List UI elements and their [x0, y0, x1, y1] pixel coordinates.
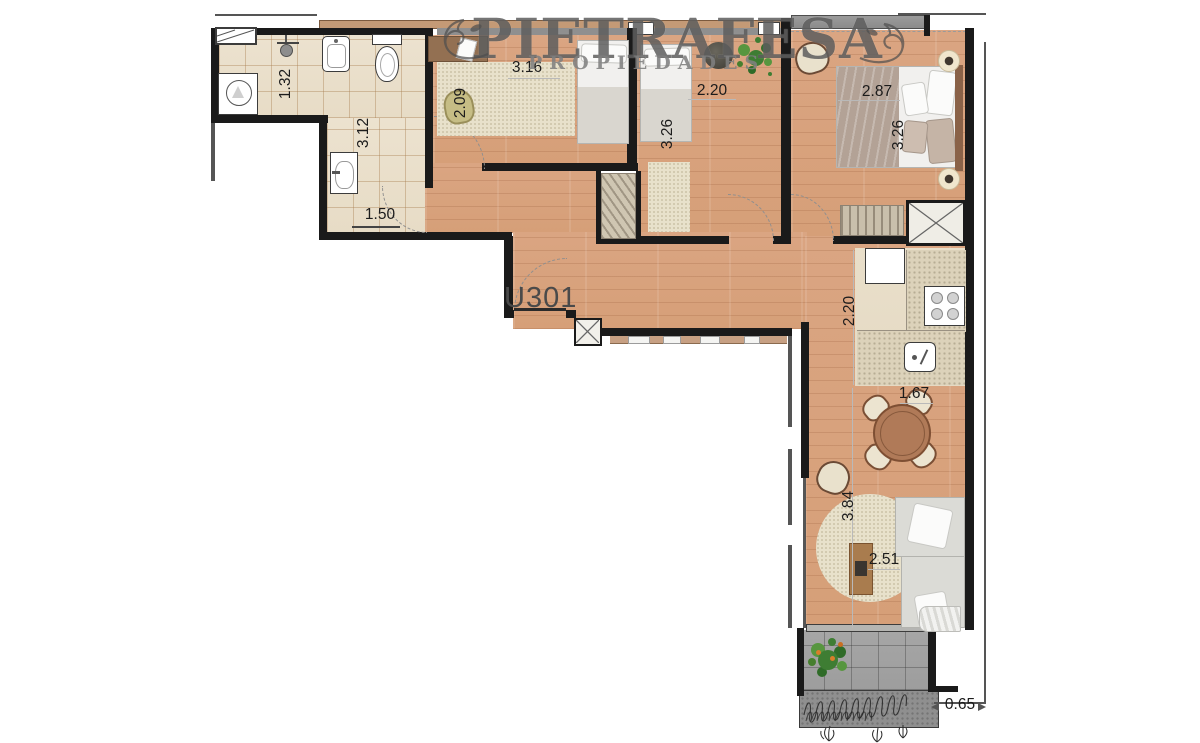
- terrace-floor: [797, 630, 930, 690]
- floor-plan-canvas: 1.32 3.12 1.50 2.09 3.16 2.20 3.26 2.87 …: [0, 0, 1200, 743]
- dimension-label: 3.12: [356, 113, 372, 153]
- stove-burner-icon: [947, 292, 959, 304]
- bedroom2-rug: [648, 162, 690, 232]
- wall: [801, 322, 809, 478]
- wall: [211, 123, 215, 181]
- plant: [748, 50, 764, 66]
- bed-pillow: [644, 47, 691, 67]
- toilet-bowl-inner: [380, 53, 395, 77]
- dimension-line: [900, 403, 933, 404]
- toilet-bowl: [375, 46, 399, 82]
- curtain-fabric: [919, 606, 961, 632]
- single-bed: [577, 40, 629, 144]
- dimension-arrow-right-icon: [978, 703, 986, 711]
- dimension-label: 2.51: [864, 552, 904, 568]
- property-line: [984, 42, 986, 704]
- dimension-label: 2.20: [842, 291, 858, 331]
- property-line: [898, 13, 986, 15]
- dimension-line: [508, 78, 560, 79]
- flourish-left-icon: [438, 16, 492, 64]
- wall: [924, 14, 930, 36]
- terrace-plant-berry: [830, 656, 835, 661]
- stove-burner-icon: [947, 308, 959, 320]
- sink-basin: [335, 161, 354, 189]
- duct-shaft: [574, 318, 602, 346]
- faucet-dot: [332, 171, 340, 174]
- neighbor-fixture: [663, 336, 681, 344]
- wall: [928, 626, 936, 692]
- faucet-arm: [920, 349, 929, 364]
- dimension-label: 3.16: [507, 60, 547, 76]
- side-window-line: [788, 545, 792, 628]
- wall: [965, 28, 974, 630]
- dimension-line: [352, 226, 400, 228]
- dimension-label: 2.09: [453, 83, 469, 123]
- dimension-line: [688, 99, 736, 100]
- washing-machine: [218, 73, 258, 115]
- vent-window-box: [215, 27, 257, 45]
- fridge: [865, 248, 905, 284]
- bed-pillow: [924, 69, 957, 116]
- dimension-line: [277, 42, 299, 44]
- dimension-label: 3.26: [660, 114, 676, 154]
- dimension-line: [868, 569, 900, 570]
- dimension-label: 2.20: [692, 83, 732, 99]
- stove-burner-icon: [931, 292, 943, 304]
- bed-blanket: [837, 67, 899, 167]
- window-frame: [758, 22, 780, 35]
- shaft-x-icon: [576, 320, 599, 343]
- wall: [928, 686, 958, 692]
- terrace-planter: [799, 690, 939, 728]
- dimension-label: 1.50: [360, 207, 400, 223]
- top-boundary-line: [215, 14, 317, 16]
- neighbor-fixture: [700, 336, 720, 344]
- dimension-label: 1.67: [894, 386, 934, 402]
- bed-pillow: [925, 118, 957, 165]
- bed-pillow: [581, 43, 628, 64]
- dining-table: [873, 404, 931, 462]
- hand-sink: [330, 152, 358, 194]
- flourish-right-icon: [856, 20, 910, 68]
- stove: [924, 286, 965, 326]
- sprig-icon: [866, 726, 888, 743]
- toilet-tank: [372, 34, 402, 45]
- terrace-plant: [818, 650, 838, 670]
- pouf: [704, 42, 733, 69]
- dimension-label: 2.87: [857, 84, 897, 100]
- bed-blanket: [578, 87, 628, 143]
- vanity-sink: [322, 36, 350, 72]
- sprig-icon: [818, 724, 840, 742]
- headboard: [955, 65, 963, 171]
- sprig-icon: [893, 722, 913, 739]
- wall: [602, 328, 792, 336]
- dimension-label: 3.26: [891, 115, 907, 155]
- dimension-label: 0.65: [940, 697, 980, 713]
- wall: [319, 115, 327, 240]
- dimension-label: 1.32: [278, 64, 294, 104]
- neighbor-fixture: [628, 336, 650, 344]
- hallway-floor-west: [425, 163, 597, 233]
- dimension-label: 3.84: [841, 486, 857, 526]
- window-line: [803, 478, 806, 628]
- table-inner-ring: [880, 411, 925, 456]
- vent-diagonal-icon: [217, 29, 255, 43]
- closet: [601, 173, 636, 239]
- sofa-cushion: [906, 502, 953, 549]
- kitchen-sink: [904, 342, 936, 372]
- bedside-lamp-icon: [938, 168, 960, 190]
- dimension-line: [838, 100, 900, 101]
- toilet: [372, 34, 402, 90]
- faucet-dot: [912, 355, 917, 360]
- bed-pillow: [901, 81, 930, 116]
- wall: [833, 236, 908, 244]
- sink-basin: [327, 44, 346, 68]
- wall: [211, 115, 328, 123]
- wall: [319, 232, 512, 240]
- unit-label: U301: [504, 282, 577, 315]
- side-window-line: [788, 336, 792, 427]
- planter-vegetation-scribble: [800, 691, 936, 725]
- shaft-x-icon: [909, 203, 963, 243]
- shower-drain-icon: [280, 44, 293, 57]
- faucet-dot: [334, 39, 338, 43]
- sofa: [895, 497, 965, 557]
- wall: [636, 171, 641, 241]
- neighbor-fixture: [744, 336, 760, 344]
- wall: [797, 628, 804, 696]
- wall: [482, 163, 638, 171]
- stove-burner-icon: [931, 308, 943, 320]
- dimension-arrow-left-icon: [931, 703, 939, 711]
- bedside-lamp-icon: [938, 50, 960, 72]
- wall: [781, 18, 791, 244]
- duct-shaft-large: [906, 200, 966, 246]
- wardrobe: [840, 205, 904, 236]
- side-window-line: [788, 449, 792, 525]
